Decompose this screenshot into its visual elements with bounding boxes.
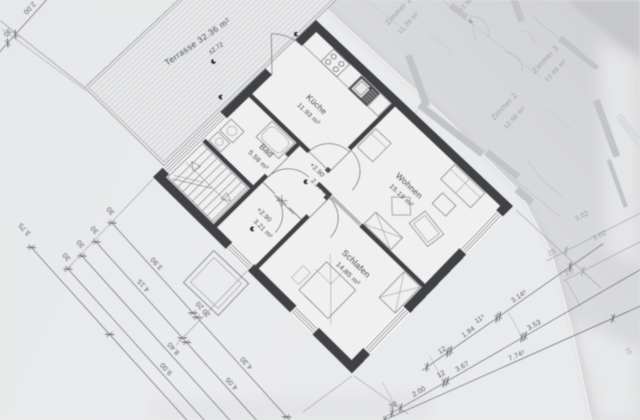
- svg-text:12: 12: [437, 345, 448, 355]
- svg-text:2.00: 2.00: [411, 385, 427, 398]
- svg-text:3.67: 3.67: [454, 360, 470, 373]
- svg-text:30: 30: [76, 238, 87, 249]
- svg-text:30: 30: [2, 27, 13, 38]
- svg-text:4.30: 4.30: [239, 355, 254, 370]
- svg-text:3.02: 3.02: [592, 230, 608, 243]
- svg-text:30: 30: [106, 205, 117, 216]
- svg-text:±2.72: ±2.72: [207, 41, 225, 56]
- svg-text:3.53: 3.53: [526, 319, 542, 332]
- svg-text:3.90: 3.90: [150, 255, 165, 270]
- svg-text:4.15: 4.15: [136, 277, 151, 292]
- svg-text:8.40: 8.40: [167, 340, 182, 355]
- svg-text:1.94: 1.94: [461, 325, 477, 339]
- svg-text:30: 30: [90, 224, 101, 235]
- svg-text:3.02: 3.02: [574, 210, 590, 223]
- svg-text:Terrasse 32.36 m²: Terrasse 32.36 m²: [163, 16, 232, 68]
- svg-text:20: 20: [195, 300, 206, 311]
- svg-text:30: 30: [62, 251, 73, 262]
- svg-text:11⁵: 11⁵: [474, 313, 487, 325]
- svg-text:4.05: 4.05: [225, 375, 240, 390]
- svg-text:3.75: 3.75: [18, 221, 33, 236]
- svg-text:9.00: 9.00: [159, 361, 174, 376]
